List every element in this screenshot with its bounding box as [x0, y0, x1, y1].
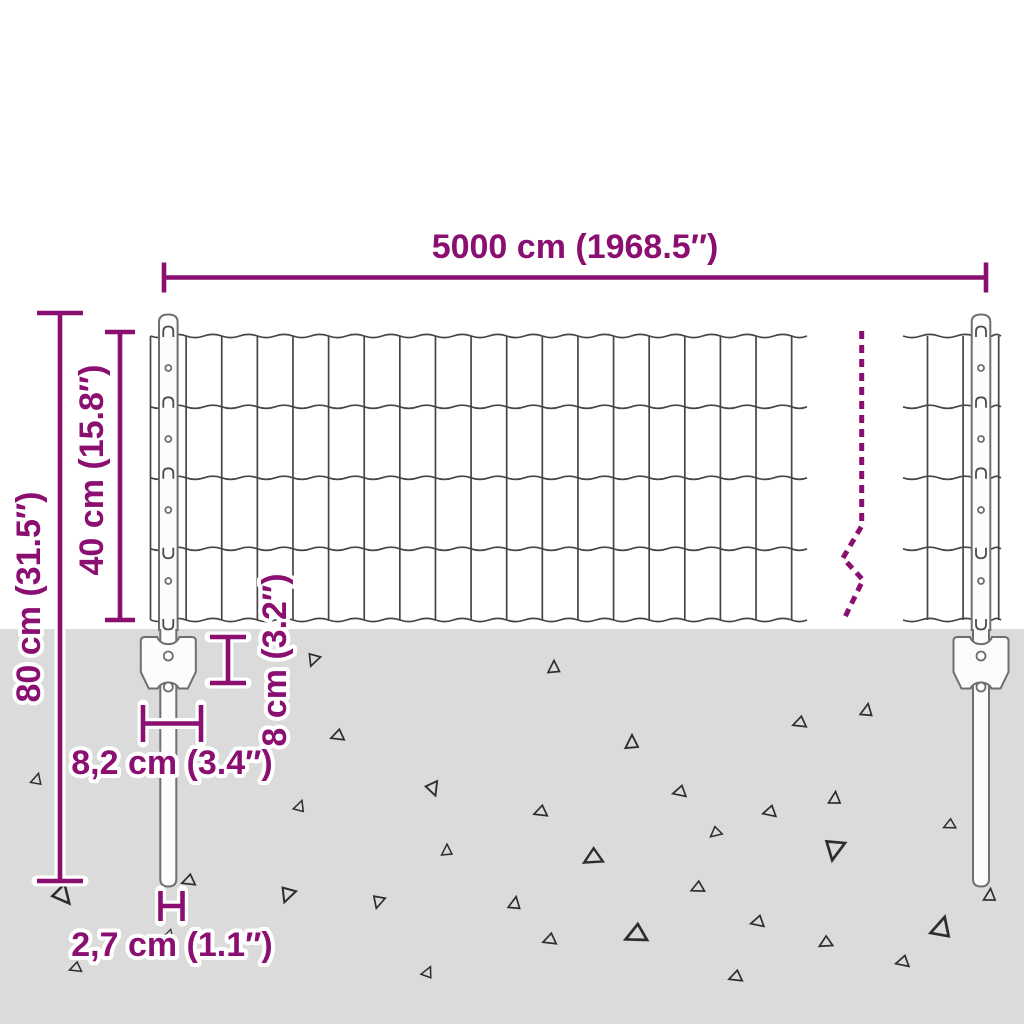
wire-hook — [163, 397, 173, 408]
wire-hook — [976, 468, 986, 479]
wire-hook — [976, 619, 986, 630]
mesh-height-dimension-label: 40 cm (15.8″) — [73, 365, 111, 576]
wire-hook — [976, 327, 986, 338]
wire-hook — [163, 619, 173, 630]
anchor-plate — [954, 637, 1009, 689]
diagram-canvas: 5000 cm (1968.5″) 80 cm (31.5″) 40 cm (1… — [0, 0, 1024, 1024]
anchor-plate-hole — [164, 652, 173, 661]
post-hole — [165, 365, 171, 371]
wire-hook — [976, 548, 986, 559]
post-hole — [165, 507, 171, 513]
wire-hook — [163, 468, 173, 479]
anchor-plate-hole — [977, 652, 986, 661]
post-hole — [978, 365, 984, 371]
post-diameter-dimension-label: 2,7 cm (1.1″) — [71, 926, 273, 964]
wire-hook — [163, 548, 173, 559]
anchor-plate-hole — [977, 683, 986, 692]
wire-hook — [976, 397, 986, 408]
post-hole — [978, 578, 984, 584]
anchor-plate — [141, 637, 196, 689]
post-hole — [978, 436, 984, 442]
anchor-height-dimension-label: 8 cm (3.2″) — [256, 573, 294, 746]
post-hole — [165, 436, 171, 442]
anchor-width-dimension-label: 8,2 cm (3.4″) — [71, 744, 273, 782]
post-hole — [978, 507, 984, 513]
anchor-plate-hole — [164, 683, 173, 692]
post-hole — [165, 578, 171, 584]
total-height-dimension-label: 80 cm (31.5″) — [10, 492, 48, 703]
wire-hook — [163, 327, 173, 338]
width-dimension-label: 5000 cm (1968.5″) — [432, 228, 719, 266]
